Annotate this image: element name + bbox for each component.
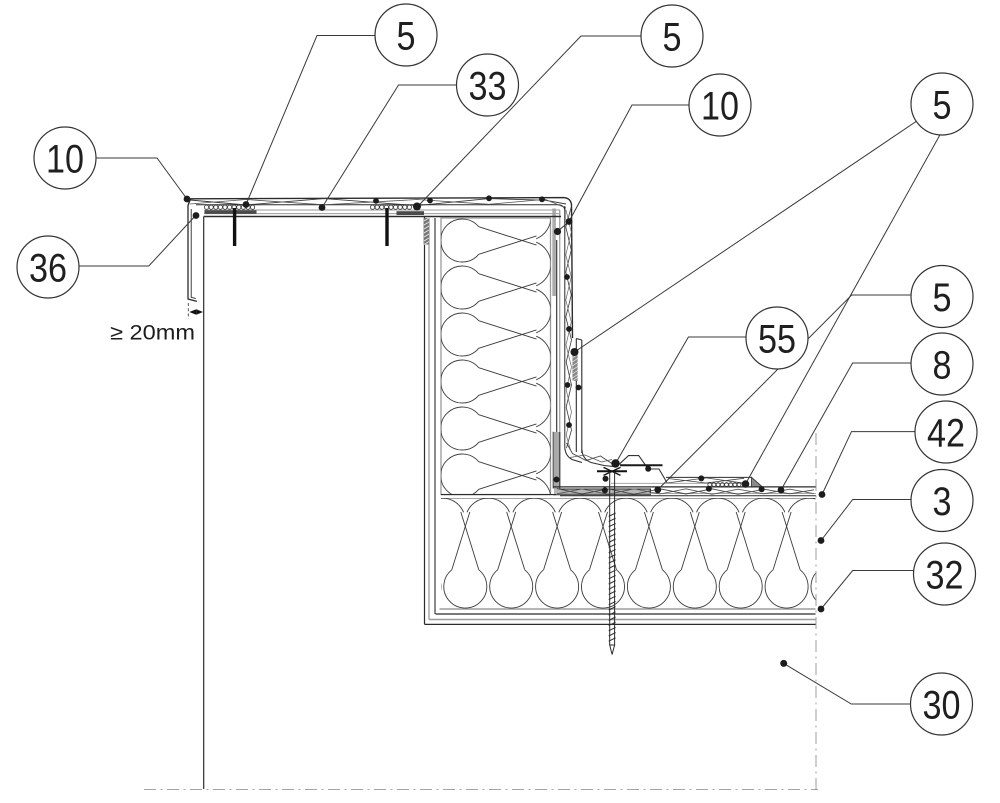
svg-text:32: 32 <box>926 554 964 598</box>
svg-text:36: 36 <box>29 247 67 291</box>
svg-text:≥ 20mm: ≥ 20mm <box>110 322 195 345</box>
svg-text:33: 33 <box>469 65 507 109</box>
svg-text:5: 5 <box>663 16 682 60</box>
svg-text:10: 10 <box>701 85 739 129</box>
svg-text:5: 5 <box>397 15 416 59</box>
svg-text:3: 3 <box>933 480 952 524</box>
svg-text:5: 5 <box>933 84 952 128</box>
svg-text:30: 30 <box>923 684 961 728</box>
svg-text:55: 55 <box>758 318 796 362</box>
svg-text:42: 42 <box>927 412 965 456</box>
svg-text:10: 10 <box>46 138 84 182</box>
svg-text:5: 5 <box>933 276 952 320</box>
svg-text:8: 8 <box>933 344 952 388</box>
